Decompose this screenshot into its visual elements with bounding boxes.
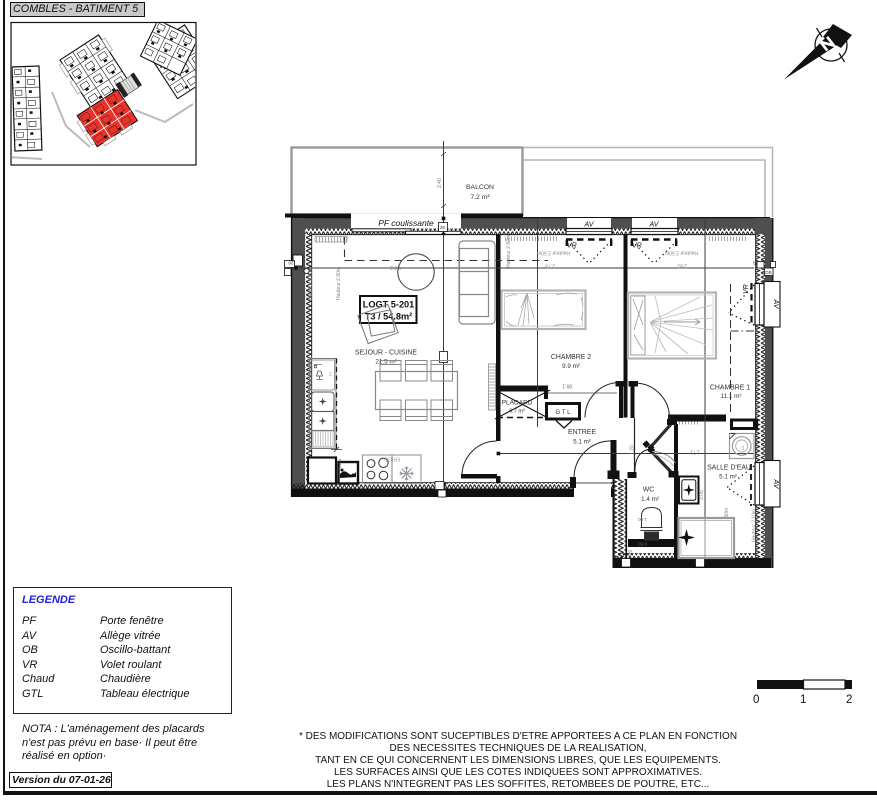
svg-text:2.0 h: 2.0 h [390, 266, 401, 272]
svg-text:1.20: 1.20 [630, 445, 636, 455]
svg-text:SEJOUR - CUISINE: SEJOUR - CUISINE [355, 350, 417, 357]
svg-text:89.1: 89.1 [562, 383, 572, 389]
svg-text:2.82: 2.82 [677, 263, 687, 269]
svg-text:G T L: G T L [555, 409, 571, 416]
svg-text:0.7 m²: 0.7 m² [509, 409, 525, 415]
svg-text:VS: VS [628, 550, 633, 556]
svg-text:LL: LL [740, 445, 745, 450]
svg-text:20: 20 [752, 261, 758, 266]
svg-text:20: 20 [440, 225, 446, 230]
svg-text:9.9 m²: 9.9 m² [562, 363, 580, 370]
svg-text:CHAMBRE 2: CHAMBRE 2 [551, 354, 591, 361]
svg-text:ENTREE: ENTREE [568, 429, 596, 436]
svg-text:CHAMBRE 1: CHAMBRE 1 [710, 385, 750, 392]
svg-text:WC: WC [643, 487, 655, 494]
svg-text:1: 1 [800, 694, 806, 706]
svg-text:PLACARD: PLACARD [502, 400, 533, 407]
svg-text:T3 / 54.8m²: T3 / 54.8m² [365, 312, 413, 322]
svg-text:BALCON: BALCON [466, 184, 494, 191]
svg-text:AV: AV [649, 222, 660, 229]
svg-text:7.2 m²: 7.2 m² [470, 194, 490, 201]
svg-text:5.1 m²: 5.1 m² [573, 439, 591, 446]
svg-text:2.40: 2.40 [437, 178, 443, 188]
svg-text:AV: AV [772, 479, 779, 490]
svg-text:1.00: 1.00 [638, 517, 647, 522]
svg-text:0.50: 0.50 [638, 542, 647, 547]
svg-text:Hauteur 2.60m: Hauteur 2.60m [336, 267, 342, 300]
svg-text:1.73: 1.73 [690, 449, 700, 455]
svg-text:Hauteur 2.50m: Hauteur 2.50m [665, 250, 698, 256]
svg-text:FRIGO: FRIGO [384, 456, 400, 462]
svg-text:Hauteur 2.10m: Hauteur 2.10m [752, 509, 758, 542]
svg-text:Hauteur 2.50m: Hauteur 2.50m [537, 250, 570, 256]
svg-text:2: 2 [846, 694, 852, 706]
svg-text:3.05: 3.05 [699, 490, 705, 500]
svg-text:11.1 m²: 11.1 m² [721, 393, 742, 400]
svg-text:5.1 m²: 5.1 m² [719, 474, 737, 481]
svg-text:PF coulissante: PF coulissante [378, 218, 434, 228]
svg-text:AV: AV [584, 222, 595, 229]
svg-text:VR: VR [632, 243, 642, 250]
svg-text:SALLE D'EAU: SALLE D'EAU [707, 465, 751, 472]
svg-text:LOGT 5-201: LOGT 5-201 [363, 300, 415, 310]
svg-text:VR: VR [567, 243, 577, 250]
svg-text:2.73: 2.73 [545, 263, 555, 269]
svg-text:LV: LV [328, 371, 333, 376]
svg-text:OB: OB [765, 270, 772, 275]
svg-text:1.4 m²: 1.4 m² [641, 496, 659, 503]
svg-text:20: 20 [288, 261, 294, 266]
svg-text:AV: AV [772, 299, 779, 310]
svg-text:Hauteur 2.60m: Hauteur 2.60m [308, 267, 314, 300]
svg-text:Chaud: Chaud [337, 459, 342, 471]
svg-text:0: 0 [753, 694, 759, 706]
